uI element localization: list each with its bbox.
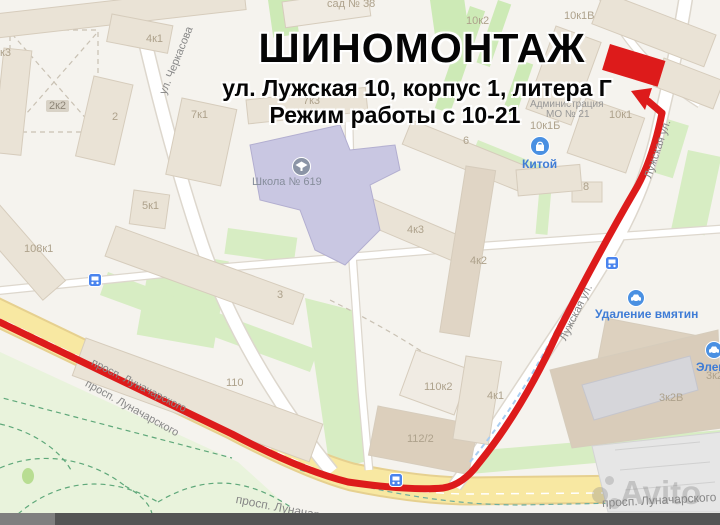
ad-title: ШИНОМОНТАЖ — [177, 25, 667, 72]
ad-address: ул. Лужская 10, корпус 1, литера Г — [172, 75, 662, 102]
watermark-logo-icon — [592, 487, 608, 503]
watermark-logo-icon — [609, 498, 620, 509]
bottom-bar — [0, 513, 720, 525]
map-ad-image: ул. Черкасова Лужская ул. Лужская ул. пр… — [0, 0, 720, 525]
watermark-text: Avito — [620, 474, 701, 512]
ad-hours: Режим работы с 10-21 — [150, 102, 640, 129]
watermark-logo-icon — [605, 476, 614, 485]
bottom-bar-segment — [0, 513, 55, 525]
